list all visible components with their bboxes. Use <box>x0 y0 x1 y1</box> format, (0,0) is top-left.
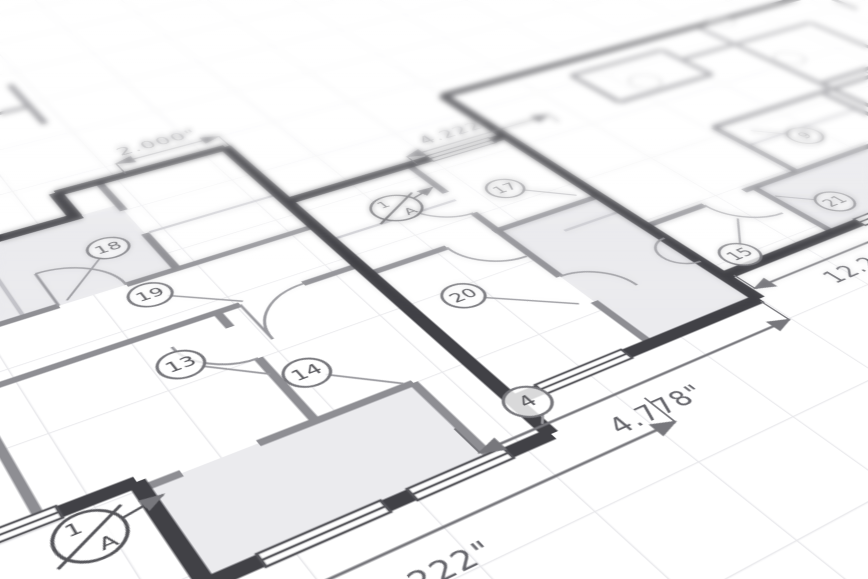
room-bubble-21-text: 21 <box>818 193 853 209</box>
section-marker-sheet: A <box>94 529 122 554</box>
section-marker-sheet: A <box>399 205 421 217</box>
floor-plan: 18 19 13 14 20 17 15 21 9 4 1 A 1 A 5.22… <box>0 0 868 407</box>
section-marker-number: 1 <box>373 199 394 211</box>
room-bubble-9-text: 9 <box>793 130 816 140</box>
blueprint-drawing <box>0 0 868 407</box>
room-bubble-18-text: 18 <box>91 239 125 257</box>
room-bubble-19-text: 19 <box>132 285 168 305</box>
room-bubble-14-text: 14 <box>287 361 327 385</box>
room-bubble-13-text: 13 <box>161 353 200 376</box>
room-bubble-20-text: 20 <box>445 286 482 306</box>
section-marker-number: 1 <box>60 517 87 541</box>
room-bubble-15-text: 15 <box>722 245 759 263</box>
blueprint-scene: 18 19 13 14 20 17 15 21 9 4 1 A 1 A 5.22… <box>0 0 868 579</box>
grid-bubble-4-text: 4 <box>513 392 543 412</box>
room-bubble-17-text: 17 <box>489 181 522 196</box>
grid-background <box>0 0 868 407</box>
